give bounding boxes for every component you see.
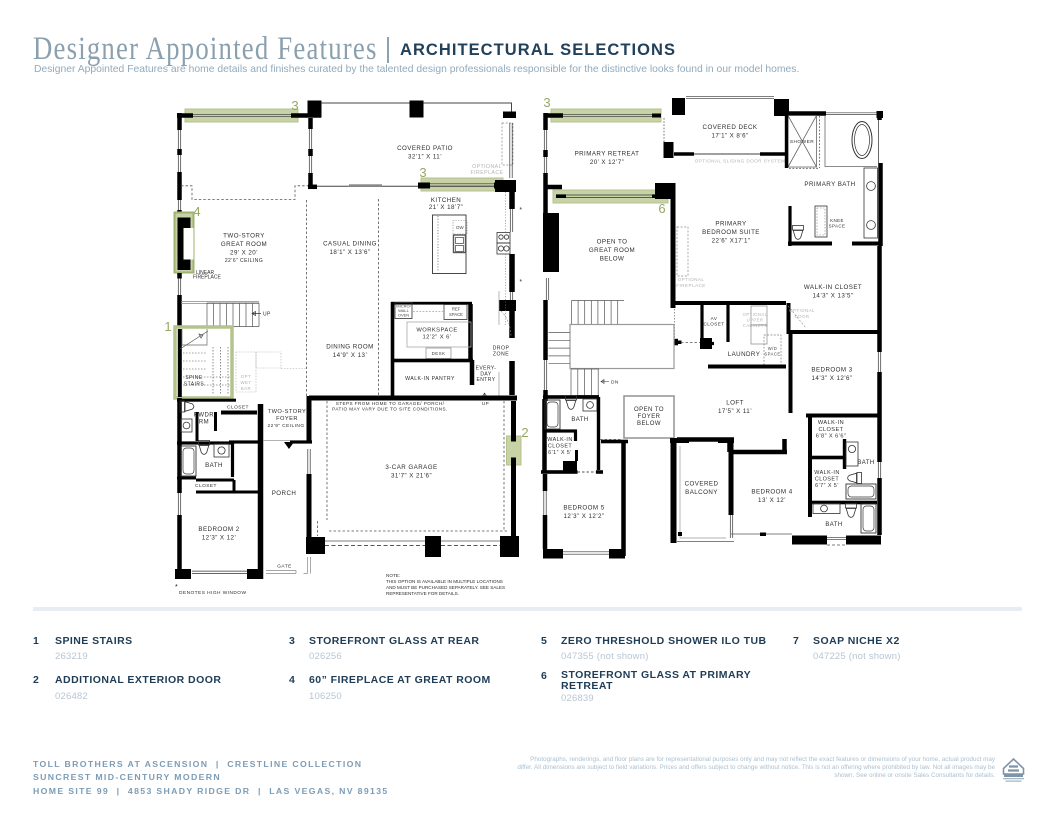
svg-text:COVERED: COVERED xyxy=(685,481,719,488)
svg-text:RM: RM xyxy=(199,420,209,426)
svg-text:14’3” X 13’5”: 14’3” X 13’5” xyxy=(813,293,854,300)
svg-text:BEDROOM SUITE: BEDROOM SUITE xyxy=(702,229,760,236)
svg-text:COVERED DECK: COVERED DECK xyxy=(703,124,758,131)
svg-text:BEDROOM 4: BEDROOM 4 xyxy=(751,489,792,496)
svg-text:FIREPLACE: FIREPLACE xyxy=(676,283,706,288)
svg-text:21’ X 18’7”: 21’ X 18’7” xyxy=(429,204,463,211)
svg-text:SPINE: SPINE xyxy=(185,375,202,381)
svg-text:TWO-STORY: TWO-STORY xyxy=(268,409,307,415)
svg-text:12’3” X 12’2”: 12’3” X 12’2” xyxy=(564,513,605,520)
svg-text:12’2” X 6’: 12’2” X 6’ xyxy=(423,335,452,341)
svg-text:WALK-IN: WALK-IN xyxy=(547,437,572,443)
svg-text:OPT: OPT xyxy=(241,374,251,379)
svg-text:6’7” X 5’: 6’7” X 5’ xyxy=(815,483,839,489)
svg-text:18’1” X 13’6”: 18’1” X 13’6” xyxy=(330,249,371,256)
svg-text:14’9” X 13’: 14’9” X 13’ xyxy=(333,352,368,359)
svg-text:12’3” X 12’: 12’3” X 12’ xyxy=(202,535,237,542)
svg-text:14’3” X 12’6”: 14’3” X 12’6” xyxy=(812,375,853,382)
svg-text:SHOWER: SHOWER xyxy=(790,139,814,145)
svg-text:GATE: GATE xyxy=(277,564,292,570)
svg-text:SPACE: SPACE xyxy=(764,352,780,357)
svg-text:FOYER: FOYER xyxy=(276,416,298,422)
svg-text:REPRESENTATIVE FOR DETAILS.: REPRESENTATIVE FOR DETAILS. xyxy=(386,591,459,596)
svg-text:OPTIONAL: OPTIONAL xyxy=(743,312,768,317)
svg-text:31’7” X 21’6”: 31’7” X 21’6” xyxy=(391,473,432,480)
svg-text:OPEN TO: OPEN TO xyxy=(597,239,628,246)
svg-text:PRIMARY: PRIMARY xyxy=(715,221,746,228)
svg-text:BALCONY: BALCONY xyxy=(685,489,718,496)
svg-text:KITCHEN: KITCHEN xyxy=(431,197,461,204)
svg-text:COVERED PATIO: COVERED PATIO xyxy=(397,145,453,152)
svg-text:22’6” X17’1”: 22’6” X17’1” xyxy=(712,238,751,245)
svg-text:PRIMARY RETREAT: PRIMARY RETREAT xyxy=(575,151,640,158)
svg-text:SPACE: SPACE xyxy=(449,312,463,317)
svg-text:6: 6 xyxy=(658,201,665,216)
svg-text:*: * xyxy=(175,584,178,591)
svg-text:*: * xyxy=(519,279,522,286)
svg-text:CABINETS: CABINETS xyxy=(743,323,768,328)
svg-text:LOFT: LOFT xyxy=(726,400,744,407)
svg-text:ENTRY: ENTRY xyxy=(476,377,495,383)
svg-text:BEDROOM 5: BEDROOM 5 xyxy=(563,505,604,512)
svg-text:STAIRS: STAIRS xyxy=(184,382,205,388)
svg-text:6’1” X 5’: 6’1” X 5’ xyxy=(548,450,572,456)
svg-text:3: 3 xyxy=(419,165,426,180)
svg-text:GREAT ROOM: GREAT ROOM xyxy=(221,241,267,248)
svg-text:UPPER: UPPER xyxy=(747,318,764,323)
svg-text:13’ X 12’: 13’ X 12’ xyxy=(758,497,786,504)
svg-text:WALK-IN CLOSET: WALK-IN CLOSET xyxy=(804,284,862,291)
svg-text:DENOTES HIGH WINDOW: DENOTES HIGH WINDOW xyxy=(179,590,246,596)
svg-text:*: * xyxy=(519,207,522,214)
svg-text:LAUNDRY: LAUNDRY xyxy=(728,351,761,358)
svg-text:BEDROOM 3: BEDROOM 3 xyxy=(811,367,852,374)
svg-text:FOYER: FOYER xyxy=(638,414,661,420)
svg-text:3: 3 xyxy=(291,98,298,113)
svg-text:WALK-IN PANTRY: WALK-IN PANTRY xyxy=(405,376,455,382)
svg-text:CLOSET: CLOSET xyxy=(815,477,840,483)
svg-text:REF: REF xyxy=(452,307,461,312)
svg-text:CLOSET: CLOSET xyxy=(548,444,573,450)
svg-text:3-CAR GARAGE: 3-CAR GARAGE xyxy=(385,464,437,471)
svg-text:OPTIONAL SLIDING DOOR SYSTEM: OPTIONAL SLIDING DOOR SYSTEM xyxy=(695,159,786,164)
svg-text:17’1” X 8’6”: 17’1” X 8’6” xyxy=(711,133,748,140)
svg-text:CLOSET: CLOSET xyxy=(703,322,724,327)
svg-text:PORCH: PORCH xyxy=(272,490,297,497)
svg-text:3: 3 xyxy=(543,95,550,110)
svg-text:22’9” CEILING: 22’9” CEILING xyxy=(267,423,304,429)
svg-text:STEPS FROM HOME TO GARAGE/ POR: STEPS FROM HOME TO GARAGE/ PORCH/ xyxy=(336,401,445,406)
svg-text:BATH: BATH xyxy=(857,460,874,466)
svg-text:PATIO MAY VARY DUE TO SITE CON: PATIO MAY VARY DUE TO SITE CONDITIONS. xyxy=(332,407,448,412)
svg-text:UP: UP xyxy=(263,312,271,318)
svg-text:AV: AV xyxy=(711,316,718,321)
svg-text:SPACE: SPACE xyxy=(829,223,846,228)
svg-text:TWO-STORY: TWO-STORY xyxy=(223,233,265,240)
svg-text:29’ X 20’: 29’ X 20’ xyxy=(230,250,258,257)
svg-text:BATH: BATH xyxy=(205,462,223,469)
svg-text:NOTE:: NOTE: xyxy=(386,573,400,578)
svg-text:CLOSET: CLOSET xyxy=(818,427,843,433)
svg-text:OPEN TO: OPEN TO xyxy=(634,407,664,413)
svg-text:THIS OPTION IS AVAILABLE IN MU: THIS OPTION IS AVAILABLE IN MULTIPLE LOC… xyxy=(386,579,503,584)
svg-text:GREAT ROOM: GREAT ROOM xyxy=(589,247,635,254)
svg-text:6’8” X 6’6”: 6’8” X 6’6” xyxy=(816,434,846,440)
svg-text:BAR: BAR xyxy=(241,386,251,391)
svg-text:DINING ROOM: DINING ROOM xyxy=(326,344,374,351)
svg-text:CASUAL DINING: CASUAL DINING xyxy=(323,241,377,248)
svg-text:17’5” X 11’: 17’5” X 11’ xyxy=(718,408,752,415)
svg-text:ZONE: ZONE xyxy=(493,351,509,357)
svg-text:UP: UP xyxy=(482,401,489,406)
svg-text:DESK: DESK xyxy=(432,351,446,356)
svg-text:DOOR: DOOR xyxy=(795,314,810,319)
svg-text:WALK-IN: WALK-IN xyxy=(814,470,839,476)
svg-text:OPTIONAL: OPTIONAL xyxy=(678,277,705,282)
svg-text:2: 2 xyxy=(521,425,528,440)
svg-text:BEDROOM 2: BEDROOM 2 xyxy=(198,526,239,533)
svg-text:BELOW: BELOW xyxy=(600,256,625,263)
svg-text:W/D: W/D xyxy=(768,346,778,351)
svg-text:OVEN: OVEN xyxy=(398,313,409,318)
svg-text:BATH: BATH xyxy=(571,417,588,423)
svg-text:KNEE: KNEE xyxy=(830,218,844,223)
svg-text:WET: WET xyxy=(240,380,251,385)
svg-text:BELOW: BELOW xyxy=(637,421,661,427)
svg-text:DN: DN xyxy=(611,380,619,386)
svg-text:PRIMARY BATH: PRIMARY BATH xyxy=(804,181,855,188)
svg-text:32’1” X 11’: 32’1” X 11’ xyxy=(408,154,442,161)
svg-text:AND MUST BE PURCHASED SEPARATE: AND MUST BE PURCHASED SEPARATELY. SEE SA… xyxy=(386,585,505,590)
svg-text:22’6” CEILING: 22’6” CEILING xyxy=(225,258,263,264)
svg-text:FIREPLACE: FIREPLACE xyxy=(471,170,504,176)
svg-text:FIREPLACE: FIREPLACE xyxy=(193,275,221,281)
svg-text:BATH: BATH xyxy=(825,522,842,528)
svg-text:DW: DW xyxy=(456,225,464,230)
svg-text:WORKSPACE: WORKSPACE xyxy=(416,328,457,334)
svg-text:20’ X 12’7”: 20’ X 12’7” xyxy=(590,159,624,166)
svg-text:CLOSET: CLOSET xyxy=(195,483,217,489)
svg-text:WALK-IN: WALK-IN xyxy=(818,420,844,426)
svg-text:CLOSET: CLOSET xyxy=(227,405,249,411)
svg-text:1: 1 xyxy=(164,319,171,334)
